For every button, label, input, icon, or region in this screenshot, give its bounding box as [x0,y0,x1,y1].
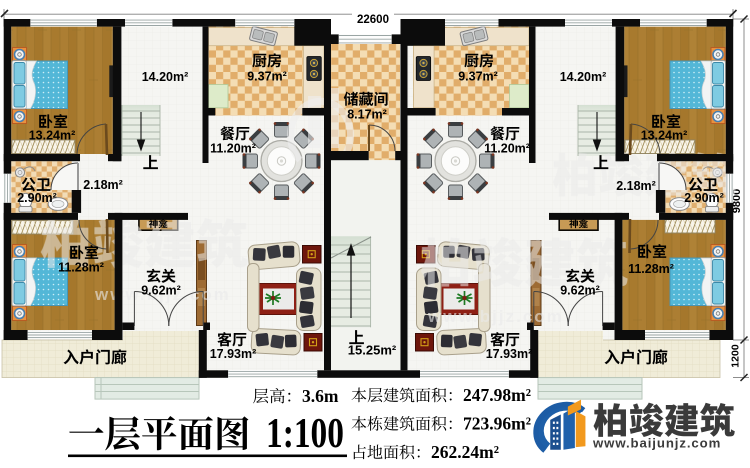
svg-text:2.90m²: 2.90m² [684,191,724,205]
svg-text:13.24m²: 13.24m² [641,129,688,143]
svg-text:2.90m²: 2.90m² [17,191,57,205]
svg-text:9.62m²: 9.62m² [141,284,181,298]
svg-text:2.18m²: 2.18m² [83,178,123,192]
svg-text:723.96m²: 723.96m² [463,414,531,434]
svg-text:11.28m²: 11.28m² [628,262,674,276]
svg-text:11.28m²: 11.28m² [58,261,104,275]
svg-text:17.93m²: 17.93m² [210,347,257,361]
svg-text:11.20m²: 11.20m² [484,142,530,156]
svg-text:1200: 1200 [730,344,742,368]
svg-text:3.6m: 3.6m [302,386,339,406]
svg-text:2.18m²: 2.18m² [616,179,656,193]
svg-text:9.62m²: 9.62m² [560,284,600,298]
svg-text:14.20m²: 14.20m² [560,70,607,84]
svg-text:1:100: 1:100 [266,411,344,457]
svg-text:22600: 22600 [357,14,389,26]
svg-text:www.baijunjz.com: www.baijunjz.com [592,435,721,450]
svg-text:8.17m²: 8.17m² [347,108,387,122]
svg-text:17.93m²: 17.93m² [486,347,533,361]
svg-text:14.20m²: 14.20m² [142,70,189,84]
svg-text:11.20m²: 11.20m² [210,142,256,156]
svg-text:9.37m²: 9.37m² [247,70,287,84]
svg-text:www.bjjz.com: www.bjjz.com [427,307,564,326]
svg-text:247.98m²: 247.98m² [463,385,531,405]
svg-text:13.24m²: 13.24m² [29,129,76,143]
svg-text:15.25m²: 15.25m² [348,343,397,358]
svg-text:9.37m²: 9.37m² [458,70,498,84]
svg-text:262.24m²: 262.24m² [431,442,499,462]
